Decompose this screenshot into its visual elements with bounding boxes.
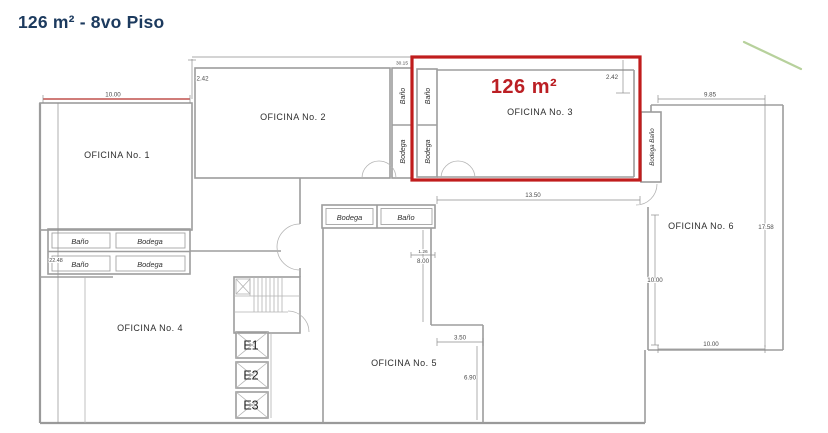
staircase	[234, 277, 300, 333]
bodega-label: Bodega	[425, 139, 432, 163]
room-label-oficina-3: OFICINA No. 3	[507, 107, 573, 117]
dim-22-48: 22.48	[49, 258, 63, 264]
dim-1-26: 1.26	[418, 249, 428, 255]
dim-10-00-bottom: 10.00	[703, 341, 719, 348]
elevator-bank: E1 E2 E3	[236, 332, 271, 418]
dim-13-50: 13.50	[525, 192, 541, 199]
dim-2-42-left: 2.42	[197, 76, 210, 83]
bano-label: Baño	[425, 88, 432, 104]
room-label-oficina-2: OFICINA No. 2	[260, 112, 326, 122]
door-arc	[379, 161, 396, 178]
dim-3-50: 3.50	[454, 335, 467, 342]
room-label-oficina-6: OFICINA No. 6	[668, 221, 734, 231]
elevator-label-e2: E2	[243, 369, 258, 383]
bano-label: Baño	[397, 213, 414, 222]
bodega-bano-label: Bodega Baño	[649, 128, 656, 166]
bano-label: Baño	[71, 237, 88, 246]
dim-17-58: 17.58	[758, 224, 774, 231]
bodega-label: Bodega	[137, 260, 162, 269]
room-oficina-1	[40, 103, 192, 230]
door-arc	[288, 311, 309, 332]
dim-2-42-right: 2.42	[606, 74, 619, 81]
dim-9-85: 9.85	[704, 92, 717, 99]
elevator-label-e3: E3	[243, 399, 258, 413]
bodega-label: Bodega	[400, 139, 407, 163]
door-arc	[458, 161, 475, 178]
floor-plan-svg: E1 E2 E3	[0, 0, 828, 433]
dim-6-90: 6.90	[464, 375, 477, 382]
dim-10-00-vertical: 10.00	[647, 277, 663, 284]
door-arc	[441, 161, 458, 178]
door-arc	[362, 161, 379, 178]
dim-10-00-left: 10.00	[105, 92, 121, 99]
dim-8-00: 8.00	[417, 258, 430, 265]
green-annotation-line	[744, 42, 801, 69]
dim-30-15: 30.15	[396, 61, 408, 67]
elevator-label-e1: E1	[243, 339, 258, 353]
room-oficina-2	[195, 68, 390, 178]
door-arc	[636, 184, 657, 205]
door-arc	[277, 224, 300, 247]
room-label-oficina-1: OFICINA No. 1	[84, 150, 150, 160]
bodega-label: Bodega	[337, 213, 362, 222]
bano-label: Baño	[400, 88, 407, 104]
bano-label: Baño	[71, 260, 88, 269]
bodega-label: Bodega	[137, 237, 162, 246]
room-label-oficina-4: OFICINA No. 4	[117, 323, 183, 333]
highlight-area-label: 126 m²	[491, 76, 557, 98]
door-arcs	[277, 161, 657, 332]
room-label-oficina-5: OFICINA No. 5	[371, 358, 437, 368]
